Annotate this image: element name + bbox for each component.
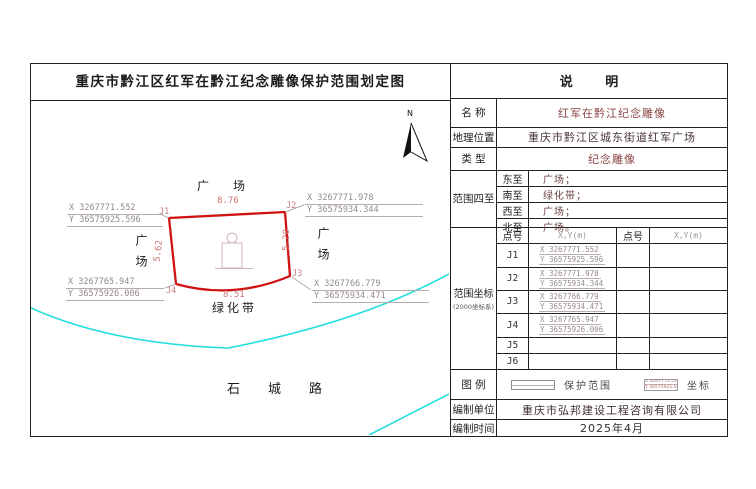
plaza-label-left: 广场 xyxy=(133,234,150,276)
table-row-j5: J5 xyxy=(497,338,727,354)
legend-protection-label: 保护范围 xyxy=(564,377,612,392)
drawing-frame: 重庆市黔江区红军在黔江纪念雕像保护范围划定图 xyxy=(30,63,728,437)
coords-label: 范围坐标 (2000坐标系) xyxy=(451,228,497,370)
unit-label: 编制单位 xyxy=(451,400,497,419)
plaza-label-top: 广场 xyxy=(197,177,269,194)
point-id: J4 xyxy=(497,314,529,337)
location-label: 地理位置 xyxy=(451,128,497,147)
point-id2 xyxy=(617,354,650,370)
point-id: J3 xyxy=(497,291,529,313)
legend-rect-midline xyxy=(512,385,554,386)
bounds-dir: 东至 xyxy=(497,171,529,186)
x-value: X 3267766.779 xyxy=(539,292,601,302)
north-label: N xyxy=(407,109,413,118)
point-xy: X 3267771.552 Y 36575925.596 xyxy=(529,244,617,267)
unit-value: 重庆市弘邦建设工程咨询有限公司 xyxy=(497,400,727,419)
callout-y-value: Y 36575925.596 xyxy=(67,215,163,227)
row-location: 地理位置 重庆市黔江区城东街道红军广场 xyxy=(451,128,727,148)
point-xy2 xyxy=(650,244,727,267)
bounds-value: 广场； xyxy=(529,171,727,186)
type-value: 纪念雕像 xyxy=(497,148,727,170)
road-edge-line-2 xyxy=(369,394,449,435)
y-value: Y 36575926.006 xyxy=(539,325,605,335)
point-xy: X 3267765.947 Y 36575926.006 xyxy=(529,314,617,337)
point-xy: X 3267766.779 Y 36575934.471 xyxy=(529,291,617,313)
coords-label-sub: (2000坐标系) xyxy=(453,301,494,311)
point-id: J5 xyxy=(497,338,529,353)
row-legend: 图 例 保护范围 X 3267771.552 Y 36575925.596 坐标 xyxy=(451,370,727,400)
point-xy2 xyxy=(650,338,727,353)
plaza-label-right: 广场 xyxy=(315,227,332,269)
bounds-dir: 西至 xyxy=(497,203,529,218)
point-xy xyxy=(529,338,617,353)
panel-header: 说 明 xyxy=(451,64,727,99)
row-unit: 编制单位 重庆市弘邦建设工程咨询有限公司 xyxy=(451,400,727,420)
table-row-j3: J3 X 3267766.779 Y 36575934.471 xyxy=(497,291,727,314)
row-coordinates: 范围坐标 (2000坐标系) 点号 X,Y(m) 点号 X,Y(m) J1 X … xyxy=(451,228,727,371)
point-label-j3: J3 xyxy=(292,269,302,279)
point-xy2 xyxy=(650,268,727,290)
bounds-rows: 东至 广场； 南至 绿化带； 西至 广场； 北至 广场。 xyxy=(497,171,727,227)
coords-table: 点号 X,Y(m) 点号 X,Y(m) J1 X 3267771.552 Y 3… xyxy=(497,228,727,370)
point-id2 xyxy=(617,291,650,313)
name-label: 名 称 xyxy=(451,99,497,127)
row-date: 编制时间 2025年4月 xyxy=(451,420,727,436)
point-id: J2 xyxy=(497,268,529,290)
table-row-j2: J2 X 3267771.978 Y 36575934.344 xyxy=(497,268,727,291)
bounds-label: 范围四至 xyxy=(451,171,497,227)
callout-y-value: Y 36575934.471 xyxy=(312,291,429,303)
point-xy2 xyxy=(650,354,727,370)
statue-icon xyxy=(215,233,253,269)
y-value: Y 36575934.344 xyxy=(539,279,605,289)
point-label-j4: J4 xyxy=(166,286,176,296)
legend-content: 保护范围 X 3267771.552 Y 36575925.596 坐标 xyxy=(497,370,727,399)
bounds-dir: 南至 xyxy=(497,187,529,202)
coords-header-row: 点号 X,Y(m) 点号 X,Y(m) xyxy=(497,228,727,244)
legend-label: 图 例 xyxy=(451,370,497,399)
x-value: X 3267771.552 xyxy=(539,245,601,255)
description-panel: 说 明 名 称 红军在黔江纪念雕像 地理位置 重庆市黔江区城东街道红军广场 类 … xyxy=(451,64,727,436)
callout-y-value: Y 36575926.006 xyxy=(66,289,164,301)
table-row-j1: J1 X 3267771.552 Y 36575925.596 xyxy=(497,244,727,268)
map-area: 重庆市黔江区红军在黔江纪念雕像保护范围划定图 xyxy=(31,64,451,436)
col-header-xy: X,Y(m) xyxy=(529,228,617,243)
north-arrow-icon xyxy=(403,123,427,161)
location-value: 重庆市黔江区城东街道红军广场 xyxy=(497,128,727,147)
point-id2 xyxy=(617,338,650,353)
row-type: 类 型 纪念雕像 xyxy=(451,148,727,171)
coordinate-callout-j1: X 3267771.552 Y 36575925.596 xyxy=(67,203,163,227)
coordinate-legend-swatch: X 3267771.552 Y 36575925.596 xyxy=(644,379,678,391)
dimension-bottom: 8.51 xyxy=(223,290,245,300)
green-belt-label: 绿化带 xyxy=(212,299,257,316)
callout-x-value: X 3267771.978 xyxy=(305,193,423,205)
table-row-j6: J6 xyxy=(497,354,727,370)
callout-y-value: Y 36575934.344 xyxy=(305,205,423,217)
drawing-sheet: 重庆市黔江区红军在黔江纪念雕像保护范围划定图 xyxy=(0,0,756,489)
date-value: 2025年4月 xyxy=(497,420,727,436)
protection-scope-legend-swatch xyxy=(511,380,555,390)
col-header-xy2: X,Y(m) xyxy=(650,228,727,243)
coordinate-callout-j3: X 3267766.779 Y 36575934.471 xyxy=(312,279,429,303)
road-name-label: 石城路 xyxy=(227,378,350,397)
legend-sample-y: Y 36575925.596 xyxy=(645,385,677,390)
callout-x-value: X 3267771.552 xyxy=(67,203,163,215)
point-xy: X 3267771.978 Y 36575934.344 xyxy=(529,268,617,290)
bounds-value: 广场； xyxy=(529,203,727,218)
row-bounds: 范围四至 东至 广场； 南至 绿化带； 西至 广场； 北至 xyxy=(451,171,727,228)
point-xy2 xyxy=(650,314,727,337)
protection-scope-polygon xyxy=(169,212,290,290)
point-xy xyxy=(529,354,617,370)
bounds-value: 绿化带； xyxy=(529,187,727,202)
dimension-right: 5.20 xyxy=(281,229,292,251)
row-name: 名 称 红军在黔江纪念雕像 xyxy=(451,99,727,128)
table-row-j4: J4 X 3267765.947 Y 36575926.006 xyxy=(497,314,727,338)
type-label: 类 型 xyxy=(451,148,497,170)
y-value: Y 36575925.596 xyxy=(539,255,605,265)
bounds-row-west: 西至 广场； xyxy=(497,203,727,219)
point-id2 xyxy=(617,268,650,290)
legend-coord-label: 坐标 xyxy=(687,377,711,392)
x-value: X 3267765.947 xyxy=(539,315,601,325)
point-id: J6 xyxy=(497,354,529,370)
coordinate-callout-j4: X 3267765.947 Y 36575926.006 xyxy=(66,277,164,301)
bounds-row-east: 东至 广场； xyxy=(497,171,727,187)
coordinate-callout-j2: X 3267771.978 Y 36575934.344 xyxy=(305,193,423,217)
callout-x-value: X 3267766.779 xyxy=(312,279,429,291)
point-id2 xyxy=(617,244,650,267)
col-header-point: 点号 xyxy=(497,228,529,243)
point-id: J1 xyxy=(497,244,529,267)
name-value: 红军在黔江纪念雕像 xyxy=(497,99,727,127)
dimension-top: 8.76 xyxy=(217,196,239,206)
point-xy2 xyxy=(650,291,727,313)
x-value: X 3267771.978 xyxy=(539,269,601,279)
coords-label-main: 范围坐标 xyxy=(454,285,494,300)
y-value: Y 36575934.471 xyxy=(539,302,605,312)
col-header-point2: 点号 xyxy=(617,228,650,243)
point-label-j2: J2 xyxy=(286,201,296,211)
date-label: 编制时间 xyxy=(451,420,497,436)
point-id2 xyxy=(617,314,650,337)
bounds-row-south: 南至 绿化带； xyxy=(497,187,727,203)
callout-x-value: X 3267765.947 xyxy=(66,277,164,289)
